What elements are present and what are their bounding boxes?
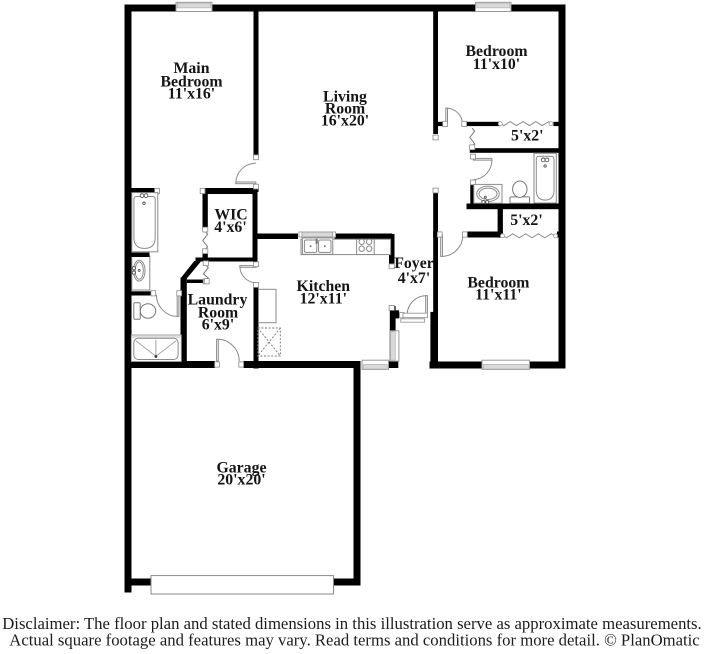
- svg-text:4'x7': 4'x7': [398, 270, 430, 287]
- svg-text:11'x16': 11'x16': [168, 86, 215, 103]
- svg-text:5'x2': 5'x2': [510, 212, 542, 229]
- svg-text:6'x9': 6'x9': [202, 316, 234, 333]
- svg-text:Actual square footage and feat: Actual square footage and features may v…: [9, 631, 699, 650]
- svg-text:11'x11': 11'x11': [475, 287, 522, 304]
- svg-text:12'x11': 12'x11': [300, 290, 347, 307]
- svg-text:4'x6': 4'x6': [214, 219, 246, 236]
- svg-text:16'x20': 16'x20': [321, 113, 369, 130]
- svg-text:11'x10': 11'x10': [473, 56, 520, 73]
- svg-text:5'x2': 5'x2': [511, 128, 543, 145]
- svg-text:20'x20': 20'x20': [217, 472, 265, 489]
